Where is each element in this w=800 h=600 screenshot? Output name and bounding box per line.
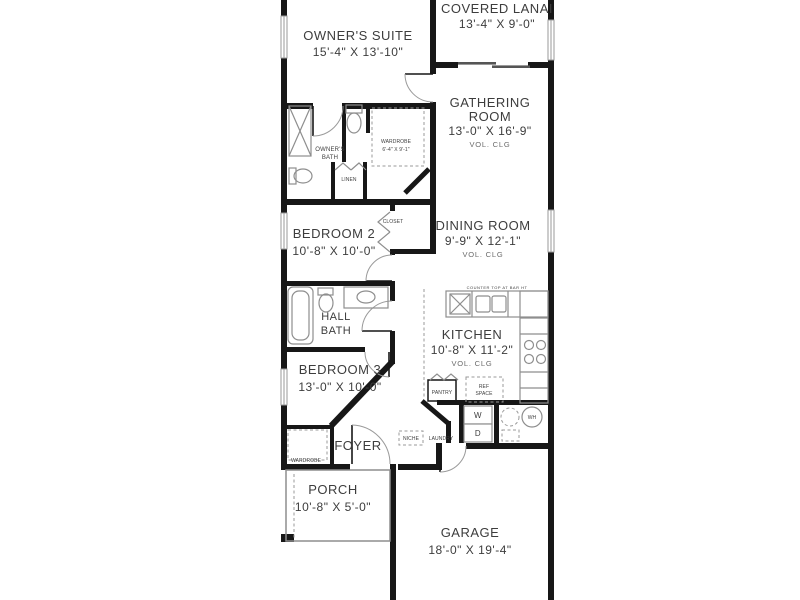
doors — [313, 74, 466, 472]
shower-owners-bath — [289, 106, 311, 156]
owners-wardrobe-dims: 6'-4" X 9'-1" — [382, 147, 409, 153]
bedroom2-label: BEDROOM 2 — [293, 226, 376, 241]
bedroom2-dims: 10'-8" X 10'-0" — [292, 244, 375, 258]
foyer-wardrobe-label: WARDROBE — [291, 458, 322, 464]
covered-lanai-label: COVERED LANAI — [441, 1, 553, 16]
toilet-owners-bath — [289, 168, 312, 184]
window-bedroom2 — [281, 213, 287, 249]
door-owners-suite-entry — [405, 74, 433, 102]
garage-label: GARAGE — [441, 525, 500, 540]
owners-suite-dims: 15'-4" X 13'-10" — [313, 45, 403, 59]
garage-dims: 18'-0" X 19'-4" — [428, 543, 511, 557]
floor-plan-page: OWNER'S SUITE 15'-4" X 13'-10" COVERED L… — [0, 0, 800, 600]
window-dining — [548, 210, 554, 252]
kitchen-counter-top — [446, 291, 548, 317]
dining-room-note: VOL. CLG — [463, 250, 504, 259]
wardrobe-shelving — [372, 108, 424, 166]
laundry-label: LAUNDRY — [429, 436, 454, 442]
linen-label: LINEN — [341, 177, 357, 183]
door-bedroom2 — [366, 255, 392, 281]
tub-hall-bath — [288, 287, 313, 344]
toilet-water-closet — [346, 105, 362, 133]
door-garage-entry — [440, 446, 466, 472]
covered-lanai-dims: 13'-4" X 9'-0" — [459, 17, 535, 31]
gathering-room-note: VOL. CLG — [470, 140, 511, 149]
window-owners-suite — [281, 16, 287, 58]
foyer-label: FOYER — [334, 438, 381, 453]
bedroom3-label: BEDROOM 3 — [299, 362, 382, 377]
ref-space-label2: SPACE — [475, 391, 493, 397]
dining-room-label: DINING ROOM — [435, 218, 530, 233]
pantry-label: PANTRY — [432, 390, 453, 396]
sliding-door-lanai — [458, 62, 530, 68]
bifold-linen — [335, 163, 366, 170]
closet-label: CLOSET — [383, 219, 404, 225]
kitchen-counter-right — [520, 291, 548, 403]
foyer-closet-shelving — [288, 430, 327, 460]
water-softener — [501, 408, 519, 441]
window-lanai-screen — [548, 20, 554, 60]
ref-space-label1: REF — [479, 384, 489, 390]
niche-label: NICHE — [403, 436, 420, 442]
water-heater-label: WH — [528, 415, 537, 421]
door-owners-bath — [313, 106, 343, 136]
toilet-hall-bath — [318, 288, 333, 312]
owners-bath-label1: OWNER'S — [315, 147, 345, 153]
floor-plan-drawing: OWNER'S SUITE 15'-4" X 13'-10" COVERED L… — [0, 0, 800, 600]
vanity-hall-bath — [344, 287, 388, 308]
kitchen-dims: 10'-8" X 11'-2" — [431, 343, 513, 357]
window-bedroom3 — [281, 369, 287, 405]
gathering-room-dims: 13'-0" X 16'-9" — [448, 124, 531, 138]
gathering-room-label2: ROOM — [469, 109, 511, 124]
pantry-closet — [428, 374, 458, 401]
washer-label: W — [474, 411, 482, 420]
dryer-label: D — [475, 429, 481, 438]
porch-dims: 10'-8" X 5'-0" — [295, 500, 371, 514]
owners-suite-label: OWNER'S SUITE — [303, 28, 412, 43]
porch-label: PORCH — [308, 482, 357, 497]
hall-bath-label1: HALL — [321, 311, 351, 323]
gathering-room-label1: GATHERING — [450, 95, 531, 110]
kitchen-label: KITCHEN — [442, 327, 503, 342]
hall-bath-label2: BATH — [321, 325, 352, 337]
owners-wardrobe-label: WARDROBE — [381, 139, 412, 145]
bedroom3-dims: 13'-0" X 10'-0" — [298, 380, 381, 394]
room-labels: OWNER'S SUITE 15'-4" X 13'-10" COVERED L… — [291, 1, 553, 557]
bifold-closet-bedroom2 — [378, 212, 390, 252]
dining-room-dims: 9'-9" X 12'-1" — [445, 234, 521, 248]
owners-bath-label2: BATH — [322, 155, 338, 161]
kitchen-note: VOL. CLG — [452, 359, 493, 368]
kitchen-counter-note: COUNTER TOP AT BAR HT — [467, 285, 528, 290]
fixtures — [286, 105, 548, 541]
